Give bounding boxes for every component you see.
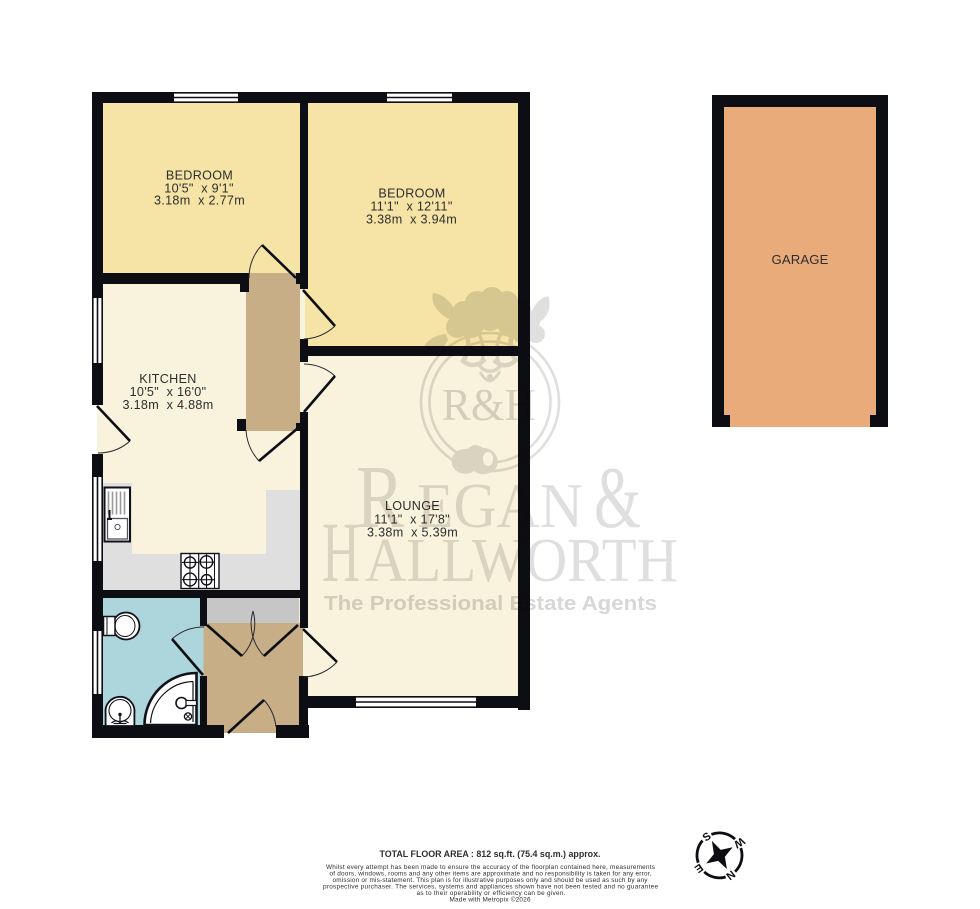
- svg-text:10'5" x 16'0": 10'5" x 16'0": [130, 385, 207, 399]
- svg-text:R&H: R&H: [442, 379, 536, 430]
- svg-text:3.18m x 4.88m: 3.18m x 4.88m: [123, 398, 214, 412]
- svg-text:3.38m x 3.94m: 3.38m x 3.94m: [366, 213, 457, 227]
- svg-text:11'1" x 12'11": 11'1" x 12'11": [370, 199, 452, 213]
- svg-text:The Professional Estate Agents: The Professional Estate Agents: [324, 592, 657, 615]
- svg-text:TOTAL FLOOR AREA : 812 sq.ft.: TOTAL FLOOR AREA : 812 sq.ft. (75.4 sq.m…: [380, 849, 601, 859]
- svg-text:KITCHEN: KITCHEN: [139, 372, 196, 386]
- svg-text:BEDROOM: BEDROOM: [378, 187, 445, 201]
- svg-text:3.18m x 2.77m: 3.18m x 2.77m: [154, 194, 245, 208]
- svg-text:H: H: [322, 504, 360, 600]
- svg-text:GARAGE: GARAGE: [771, 252, 828, 267]
- svg-text:Made with Metropix ©2026: Made with Metropix ©2026: [450, 895, 531, 903]
- svg-text:BEDROOM: BEDROOM: [166, 168, 233, 182]
- svg-text:ALLWORTH: ALLWORTH: [365, 527, 678, 595]
